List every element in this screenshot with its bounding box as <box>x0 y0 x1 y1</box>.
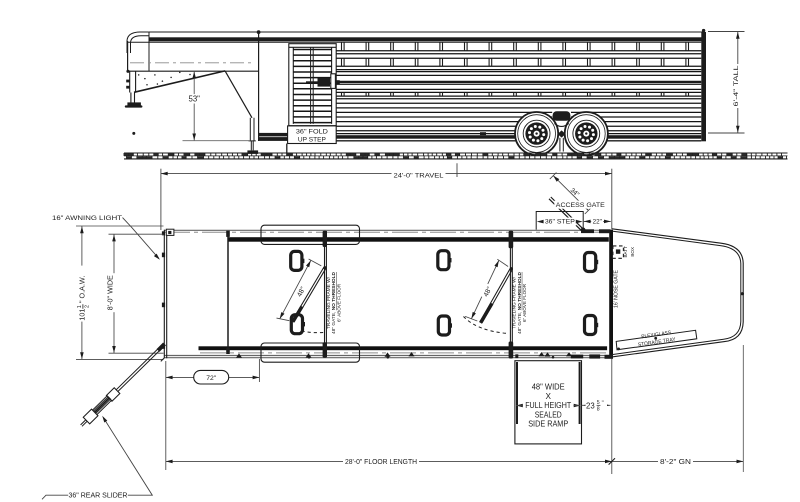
svg-text:36" STEP: 36" STEP <box>545 219 575 226</box>
svg-text:ACCESS GATE: ACCESS GATE <box>556 202 605 209</box>
svg-text:8'-0" WIDE: 8'-0" WIDE <box>108 275 115 310</box>
svg-text:28'-0" FLOOR LENGTH: 28'-0" FLOOR LENGTH <box>345 459 417 466</box>
svg-text:6" ABOVE FLOOR: 6" ABOVE FLOOR <box>336 283 341 322</box>
svg-text:": " <box>602 401 604 407</box>
svg-text:101: 101 <box>78 309 87 321</box>
svg-text:FULL HEIGHT: FULL HEIGHT <box>525 401 571 410</box>
svg-text:72": 72" <box>206 375 217 382</box>
svg-text:BATT: BATT <box>623 246 628 258</box>
svg-text:BOX: BOX <box>630 247 635 257</box>
svg-text:53": 53" <box>188 95 200 104</box>
svg-text:SIDE RAMP: SIDE RAMP <box>528 420 568 429</box>
svg-text:" O.A.W.: " O.A.W. <box>78 276 87 303</box>
svg-text:1: 1 <box>77 305 83 308</box>
svg-text:16' NOSE GATE: 16' NOSE GATE <box>613 269 619 308</box>
svg-text:24'-0" TRAVEL: 24'-0" TRAVEL <box>394 173 445 180</box>
svg-text:SEALED: SEALED <box>535 410 562 419</box>
svg-text:36" FOLD: 36" FOLD <box>296 129 328 136</box>
svg-text:22": 22" <box>593 219 602 226</box>
svg-text:2: 2 <box>85 305 91 308</box>
svg-text:8'-2" GN: 8'-2" GN <box>660 459 691 466</box>
svg-text:36" REAR SLIDER: 36" REAR SLIDER <box>69 491 128 500</box>
svg-text:UP STEP: UP STEP <box>298 137 326 144</box>
svg-text:23: 23 <box>586 401 595 410</box>
svg-text:48" WIDE: 48" WIDE <box>532 382 565 391</box>
svg-text:6'-4" TALL: 6'-4" TALL <box>733 65 740 106</box>
svg-text:16" AWNING LIGHT: 16" AWNING LIGHT <box>52 215 122 222</box>
svg-text:X: X <box>545 392 551 401</box>
svg-text:8: 8 <box>597 407 600 413</box>
svg-text:6" ABOVE FLOOR: 6" ABOVE FLOOR <box>522 283 527 322</box>
